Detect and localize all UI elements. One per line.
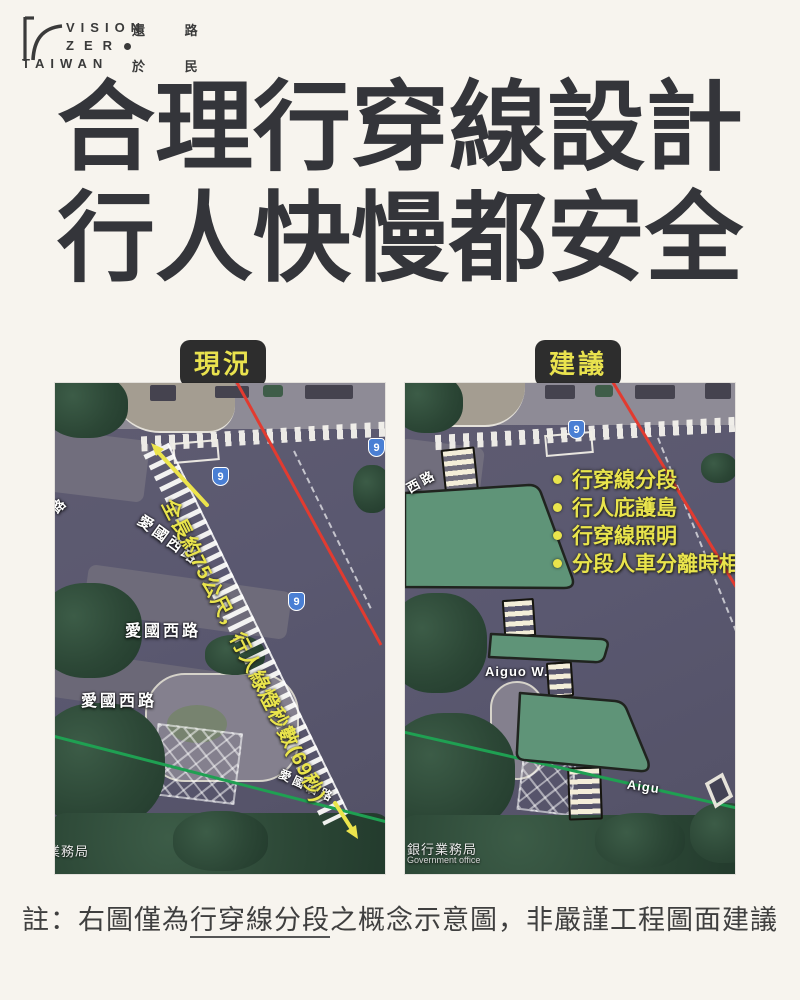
logo-text-taiwan: TAIWAN xyxy=(22,56,108,71)
title-line-1: 合理行穿線設計 xyxy=(0,72,800,183)
route-9-shield: 9 xyxy=(568,420,585,439)
route-9-shield: 9 xyxy=(368,438,385,457)
bullet-dot-icon xyxy=(553,503,562,512)
poster: VISION 還 路 ZER TAIWAN 於 民 合理行穿線設計 行人快慢都安… xyxy=(0,0,800,1000)
street-label: 愛國西路 xyxy=(125,617,201,641)
logo-text-huanlu: 還 路 xyxy=(132,20,216,39)
footnote-suffix: 之概念示意圖，非嚴謹工程圖面建議 xyxy=(330,905,778,935)
title-line-2: 行人快慢都安全 xyxy=(0,183,800,294)
street-label: 愛國西路 xyxy=(81,687,157,711)
logo-dot-icon xyxy=(124,43,131,50)
satellite-map-proposal: 西路 Aiguo W. Aigu 9 行穿線分段 行人庇護島 行穿線照明 分段人… xyxy=(405,383,735,874)
proposal-bullet-list: 行穿線分段 行人庇護島 行穿線照明 分段人車分離時相 xyxy=(553,465,735,577)
logo-text-zer: ZER xyxy=(66,38,122,53)
bullet-item: 行穿線分段 xyxy=(553,465,735,493)
main-title: 合理行穿線設計 行人快慢都安全 xyxy=(0,72,800,293)
footnote: 註：右圖僅為行穿線分段之概念示意圖，非嚴謹工程圖面建議 xyxy=(0,898,800,937)
logo-text-zero: ZER xyxy=(66,38,131,53)
footnote-underlined-term: 行穿線分段 xyxy=(190,905,330,938)
bullet-label: 分段人車分離時相 xyxy=(572,548,735,578)
bullet-item: 行人庇護島 xyxy=(553,493,735,521)
bullet-label: 行穿線分段 xyxy=(572,464,677,494)
bullet-item: 行穿線照明 xyxy=(553,521,735,549)
map-credit: 業務局 xyxy=(55,841,89,860)
bullet-item: 分段人車分離時相 xyxy=(553,549,735,577)
satellite-map-current: 路 愛國西路 愛國西路 愛國西路 愛國西路 9 9 9 全長約75公尺，行人綠燈… xyxy=(55,383,385,874)
bullet-dot-icon xyxy=(553,531,562,540)
bullet-dot-icon xyxy=(553,475,562,484)
map-credit-sub: Government office xyxy=(407,855,480,865)
footnote-prefix: 註：右圖僅為 xyxy=(22,905,190,935)
badge-proposal: 建議 xyxy=(535,340,621,387)
route-9-shield: 9 xyxy=(212,467,229,486)
map-overlay-graphics xyxy=(405,383,735,874)
badge-current: 現況 xyxy=(180,340,266,387)
route-9-shield: 9 xyxy=(288,592,305,611)
bullet-dot-icon xyxy=(553,559,562,568)
bullet-label: 行穿線照明 xyxy=(572,520,677,550)
street-label: Aiguo W. xyxy=(485,664,549,679)
bullet-label: 行人庇護島 xyxy=(572,492,677,522)
